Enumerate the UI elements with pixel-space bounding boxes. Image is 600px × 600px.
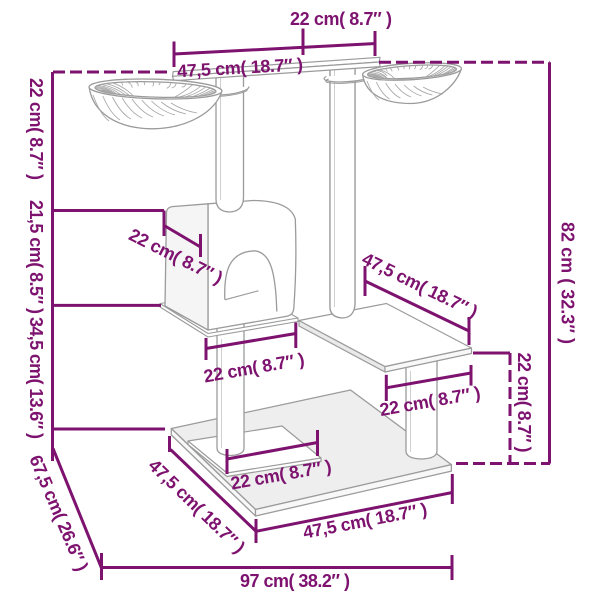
svg-text:34,5 cm( 13.6″ ): 34,5 cm( 13.6″ ): [26, 317, 46, 439]
svg-text:22 cm( 8.7″ ): 22 cm( 8.7″ ): [290, 9, 392, 29]
svg-text:21,5 cm( 8.5″ ): 21,5 cm( 8.5″ ): [26, 200, 46, 314]
svg-text:82 cm ( 32.3″ ): 82 cm ( 32.3″ ): [558, 222, 578, 344]
svg-text:97 cm( 38.2″ ): 97 cm( 38.2″ ): [240, 571, 350, 591]
svg-text:22 cm( 8.7″ ): 22 cm( 8.7″ ): [514, 353, 534, 453]
svg-text:22 cm( 8.7″ ): 22 cm( 8.7″ ): [26, 78, 46, 180]
